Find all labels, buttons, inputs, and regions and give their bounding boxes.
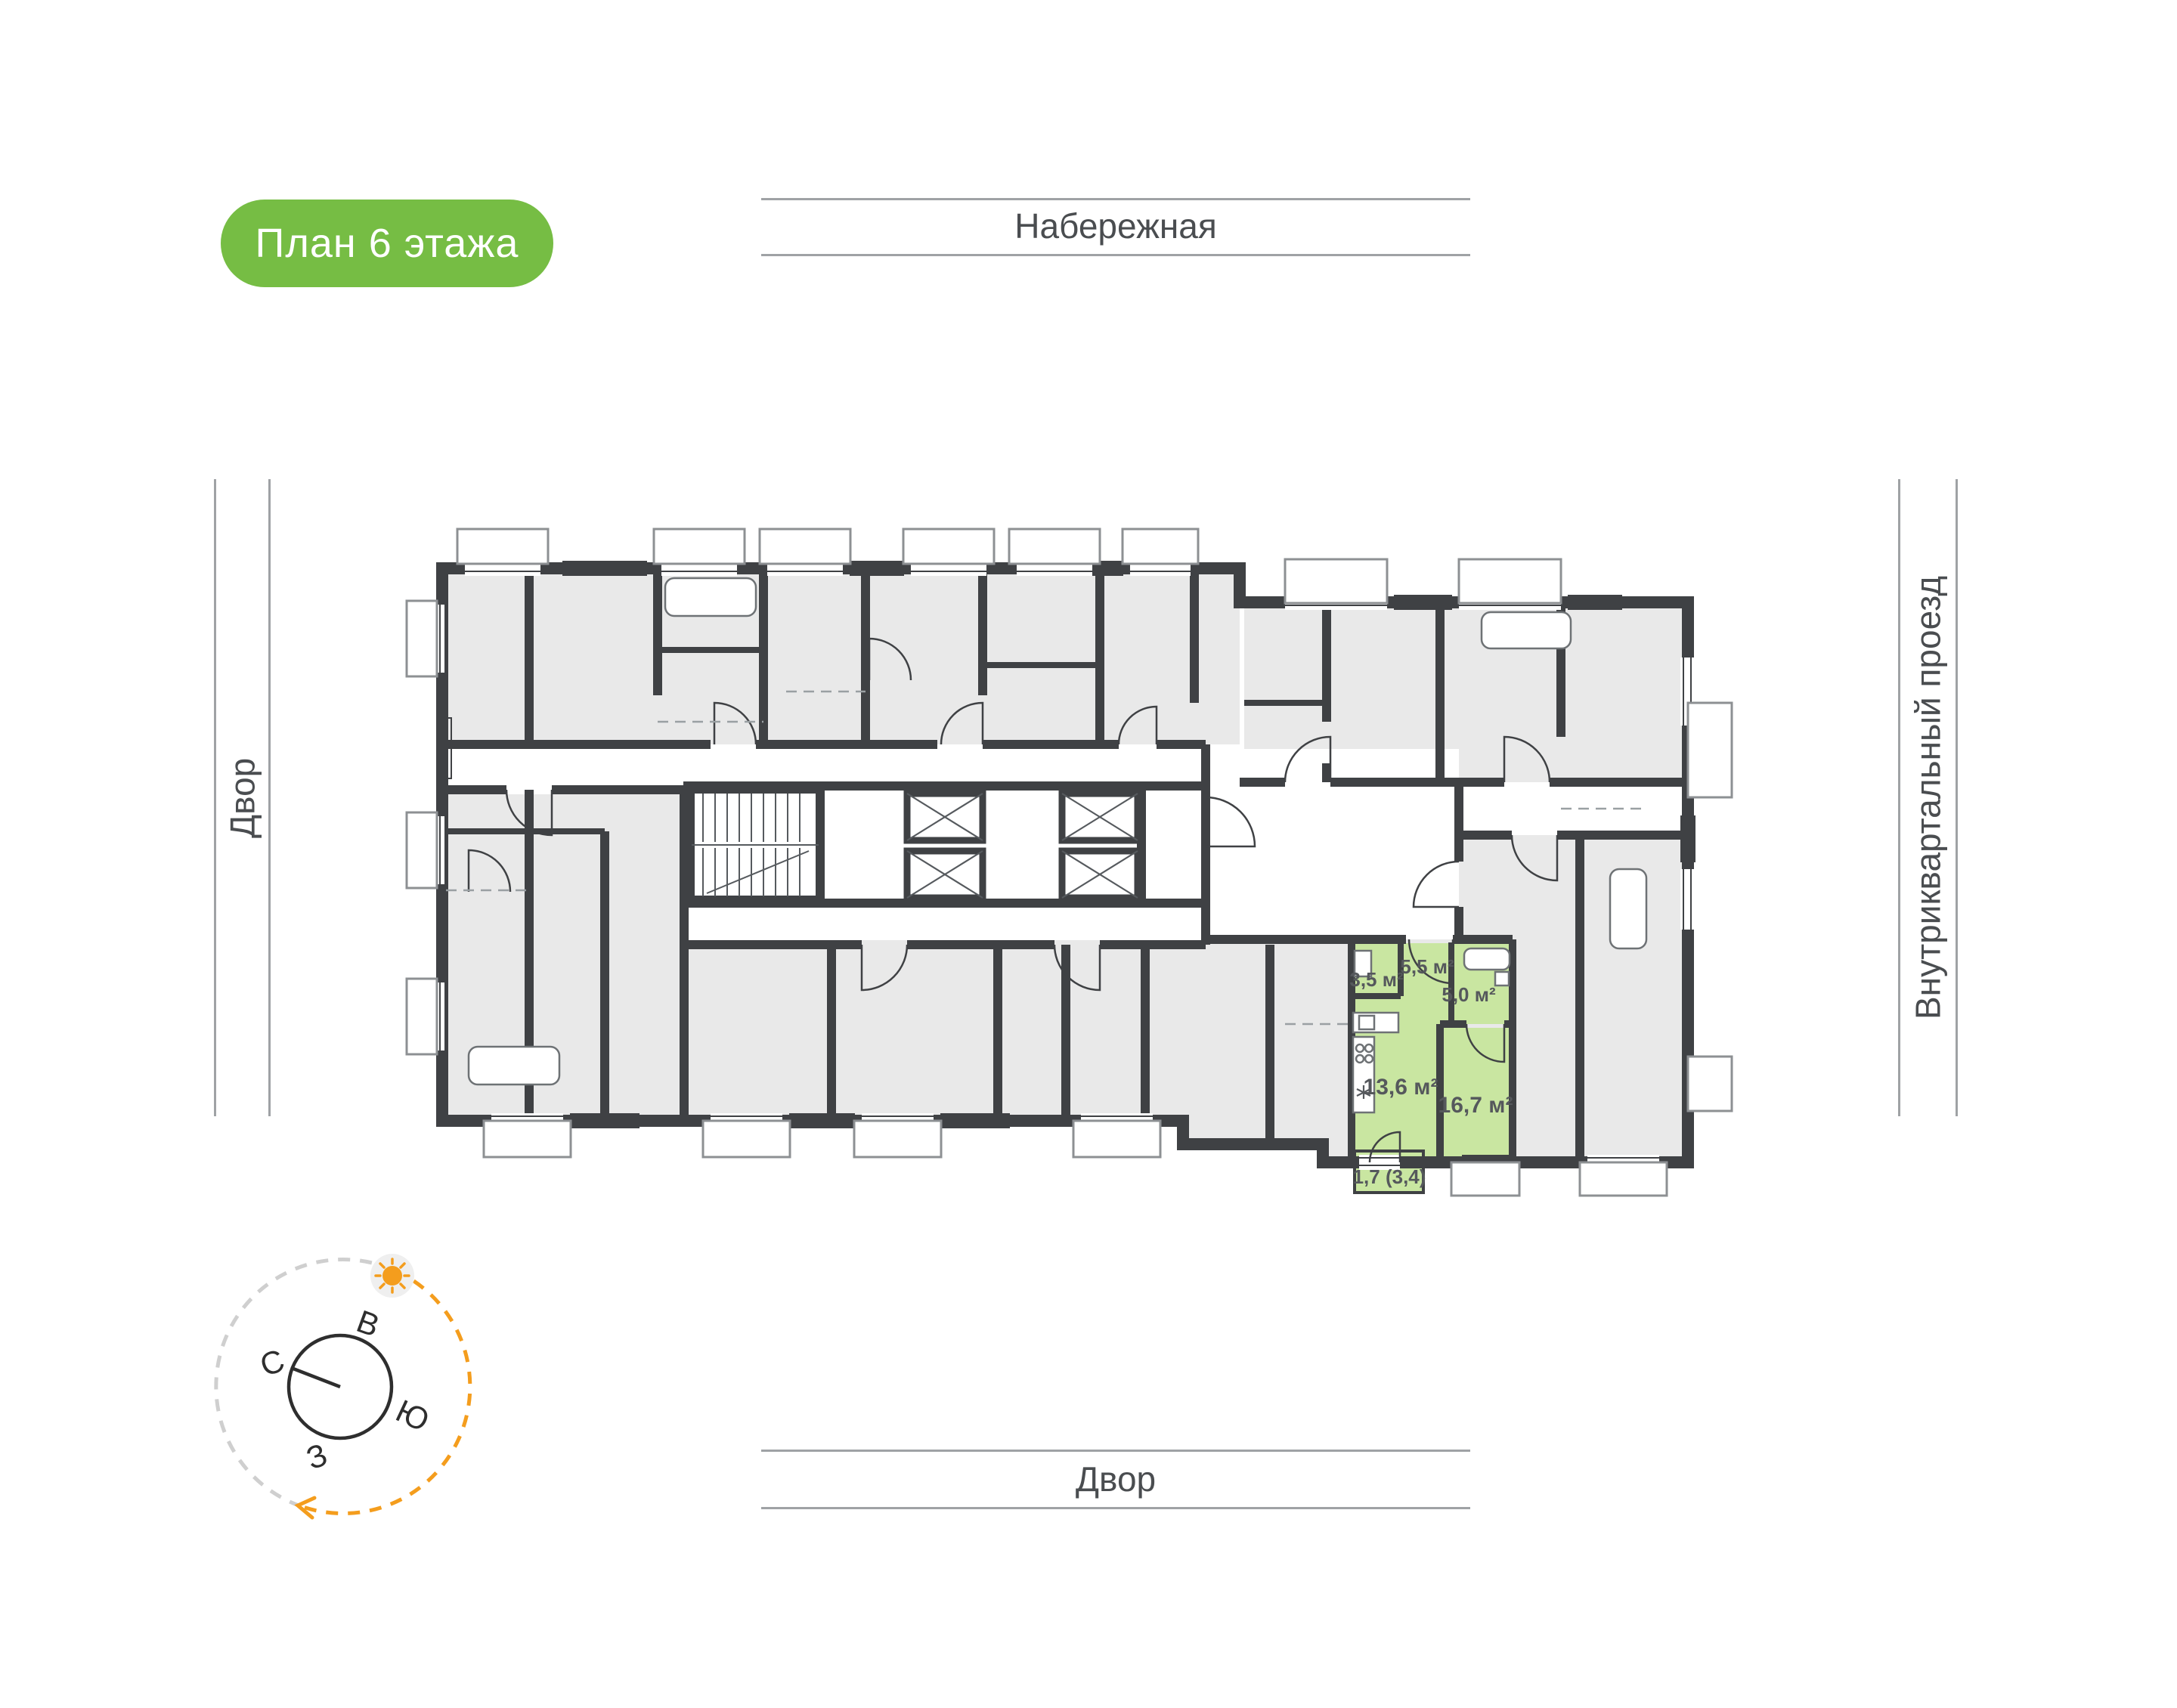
compass-north-label: С bbox=[255, 1342, 290, 1384]
bathtub-icon bbox=[1464, 948, 1510, 970]
area-label: 16,7 м² bbox=[1438, 1093, 1513, 1118]
sink-icon bbox=[1359, 1016, 1374, 1029]
compass: В С Ю З bbox=[204, 1217, 522, 1534]
bathtub-icon bbox=[665, 578, 756, 616]
area-label: 3,5 м² bbox=[1349, 968, 1404, 991]
compass-west-label: З bbox=[302, 1437, 332, 1477]
sun-icon bbox=[370, 1254, 414, 1298]
area-label: 13,6 м² bbox=[1364, 1075, 1438, 1100]
bathtub-icon bbox=[1610, 869, 1646, 948]
compass-south-label: Ю bbox=[391, 1393, 435, 1439]
compass-east-label: В bbox=[352, 1303, 384, 1344]
area-label: 5,5 м² bbox=[1400, 955, 1454, 978]
area-label: 1,7 (3,4) bbox=[1353, 1165, 1426, 1188]
sink-icon bbox=[1495, 972, 1509, 986]
bathtub-icon bbox=[469, 1047, 559, 1085]
staircase bbox=[692, 791, 819, 899]
area-label: 5,0 м² bbox=[1442, 983, 1496, 1006]
floor-plan-page: План 6 этажа Набережная Двор Двор Внутри… bbox=[0, 0, 2177, 1708]
bathtub-icon bbox=[1482, 612, 1571, 648]
